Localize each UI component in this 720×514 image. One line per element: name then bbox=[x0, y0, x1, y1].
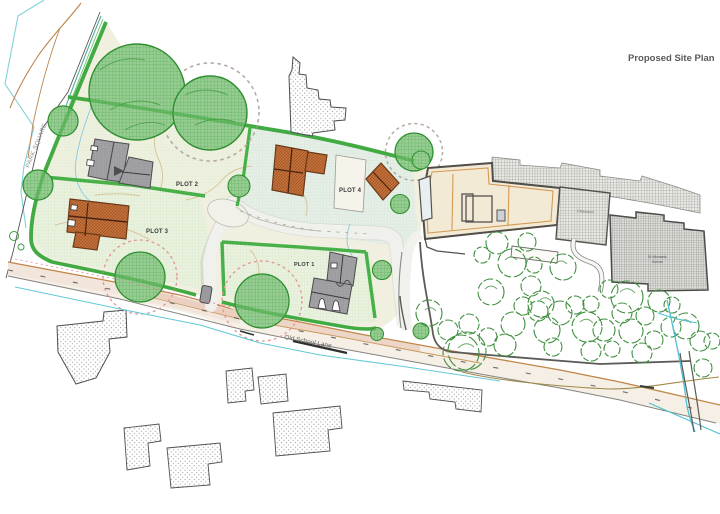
svg-text:PLOT 4: PLOT 4 bbox=[339, 188, 362, 194]
svg-text:PLOT 2: PLOT 2 bbox=[176, 182, 199, 188]
svg-text:St Michaels: St Michaels bbox=[648, 255, 667, 259]
svg-text:School: School bbox=[652, 260, 663, 264]
svg-text:PLOT 3: PLOT 3 bbox=[146, 229, 169, 235]
svg-text:PLOT 1: PLOT 1 bbox=[294, 262, 314, 268]
svg-text:Proposed Site Plan: Proposed Site Plan bbox=[628, 53, 715, 64]
